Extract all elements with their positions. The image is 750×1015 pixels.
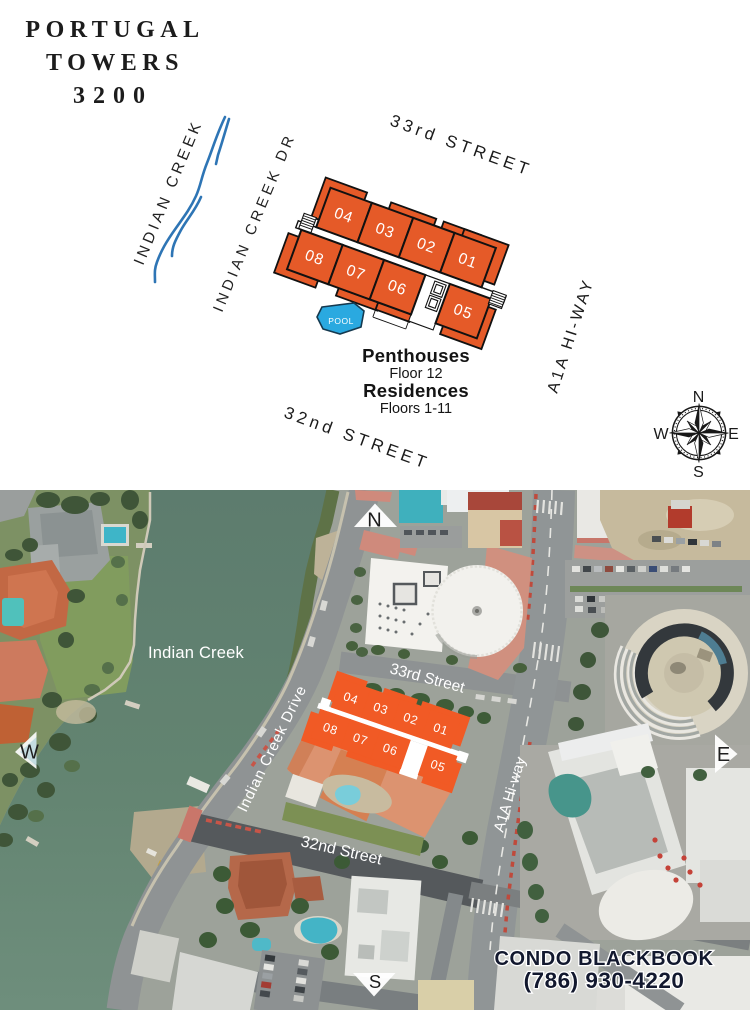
svg-text:POOL: POOL [328, 316, 354, 326]
svg-text:S: S [693, 464, 704, 481]
svg-text:N: N [693, 389, 705, 406]
svg-text:N: N [367, 510, 381, 532]
svg-text:Penthouses: Penthouses [362, 345, 470, 366]
svg-text:E: E [717, 744, 730, 766]
svg-text:W: W [20, 742, 39, 764]
svg-text:CONDO BLACKBOOK: CONDO BLACKBOOK [495, 948, 714, 970]
svg-text:Floors 1-11: Floors 1-11 [380, 401, 452, 417]
svg-text:TOWERS: TOWERS [46, 50, 184, 76]
svg-text:S: S [369, 971, 381, 992]
svg-text:PORTUGAL: PORTUGAL [25, 17, 204, 43]
svg-text:3200: 3200 [73, 83, 153, 109]
svg-text:Residences: Residences [363, 380, 469, 401]
svg-text:E: E [728, 426, 739, 443]
svg-text:Indian Creek: Indian Creek [148, 644, 245, 662]
svg-text:(786) 930-4220: (786) 930-4220 [524, 968, 685, 993]
svg-text:W: W [653, 426, 669, 443]
